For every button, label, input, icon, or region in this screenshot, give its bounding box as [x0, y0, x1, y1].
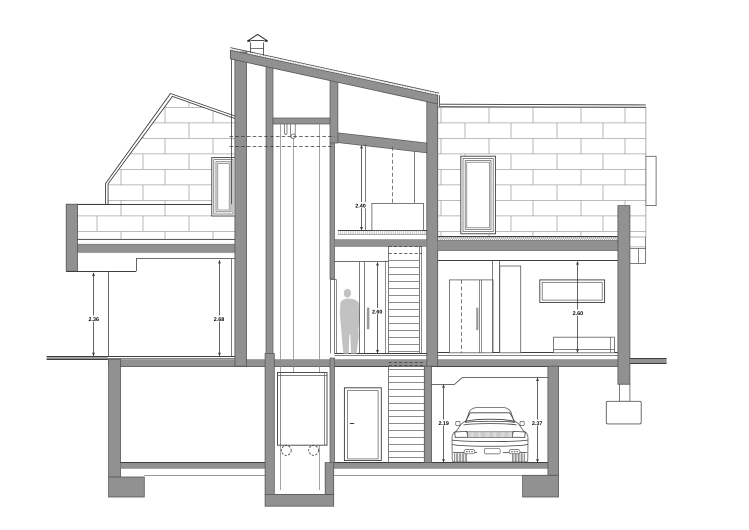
svg-text:2.60: 2.60 [372, 309, 383, 315]
svg-text:2.37: 2.37 [532, 421, 543, 427]
svg-text:2.19: 2.19 [438, 421, 449, 427]
svg-text:2.60: 2.60 [573, 311, 584, 317]
svg-text:2.40: 2.40 [355, 203, 366, 209]
svg-text:2.36: 2.36 [89, 317, 100, 323]
svg-text:2.68: 2.68 [214, 317, 225, 323]
